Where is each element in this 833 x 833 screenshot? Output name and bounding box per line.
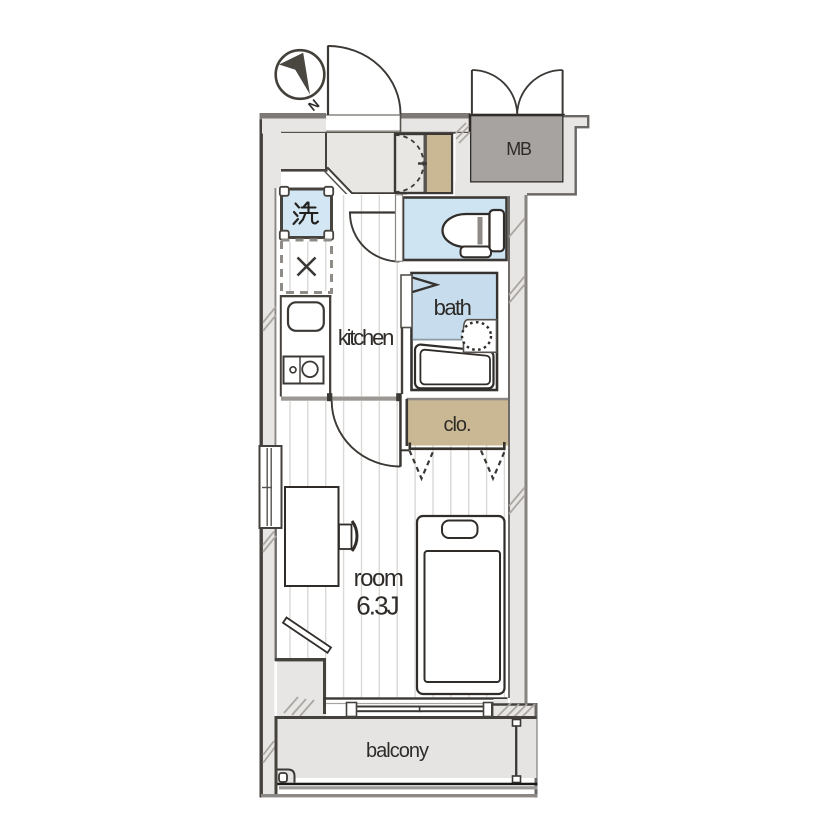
svg-text:6.3J: 6.3J bbox=[356, 591, 398, 621]
svg-text:bath: bath bbox=[434, 295, 471, 320]
svg-text:kitchen: kitchen bbox=[338, 325, 393, 350]
svg-text:balcony: balcony bbox=[366, 740, 429, 762]
svg-text:MB: MB bbox=[506, 139, 532, 159]
svg-text:clo.: clo. bbox=[443, 414, 470, 436]
svg-text:room: room bbox=[354, 565, 403, 592]
